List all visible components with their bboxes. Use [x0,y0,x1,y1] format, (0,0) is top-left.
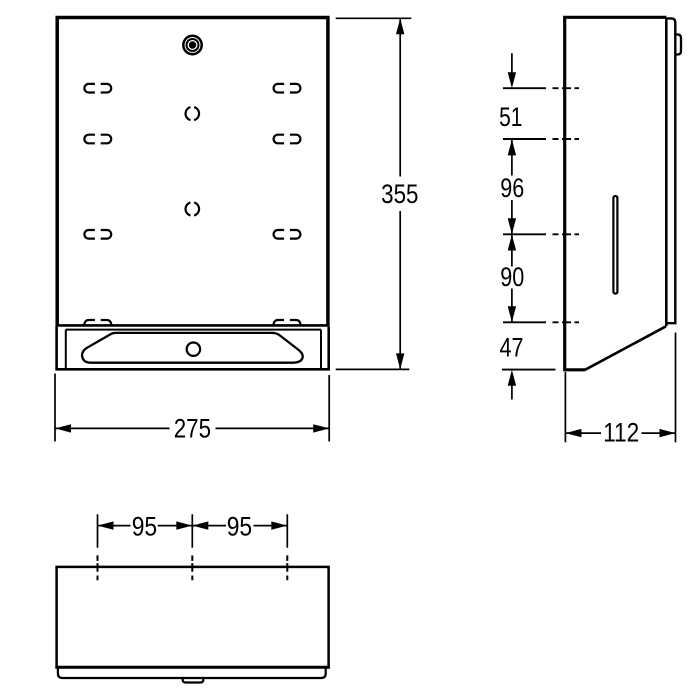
svg-text:90: 90 [500,262,524,292]
svg-text:95: 95 [132,511,157,541]
svg-text:95: 95 [227,511,252,541]
svg-text:96: 96 [500,173,524,203]
svg-text:112: 112 [603,417,639,447]
svg-text:51: 51 [499,102,522,132]
svg-text:355: 355 [381,179,418,209]
svg-text:47: 47 [500,332,524,362]
svg-text:275: 275 [174,414,211,444]
